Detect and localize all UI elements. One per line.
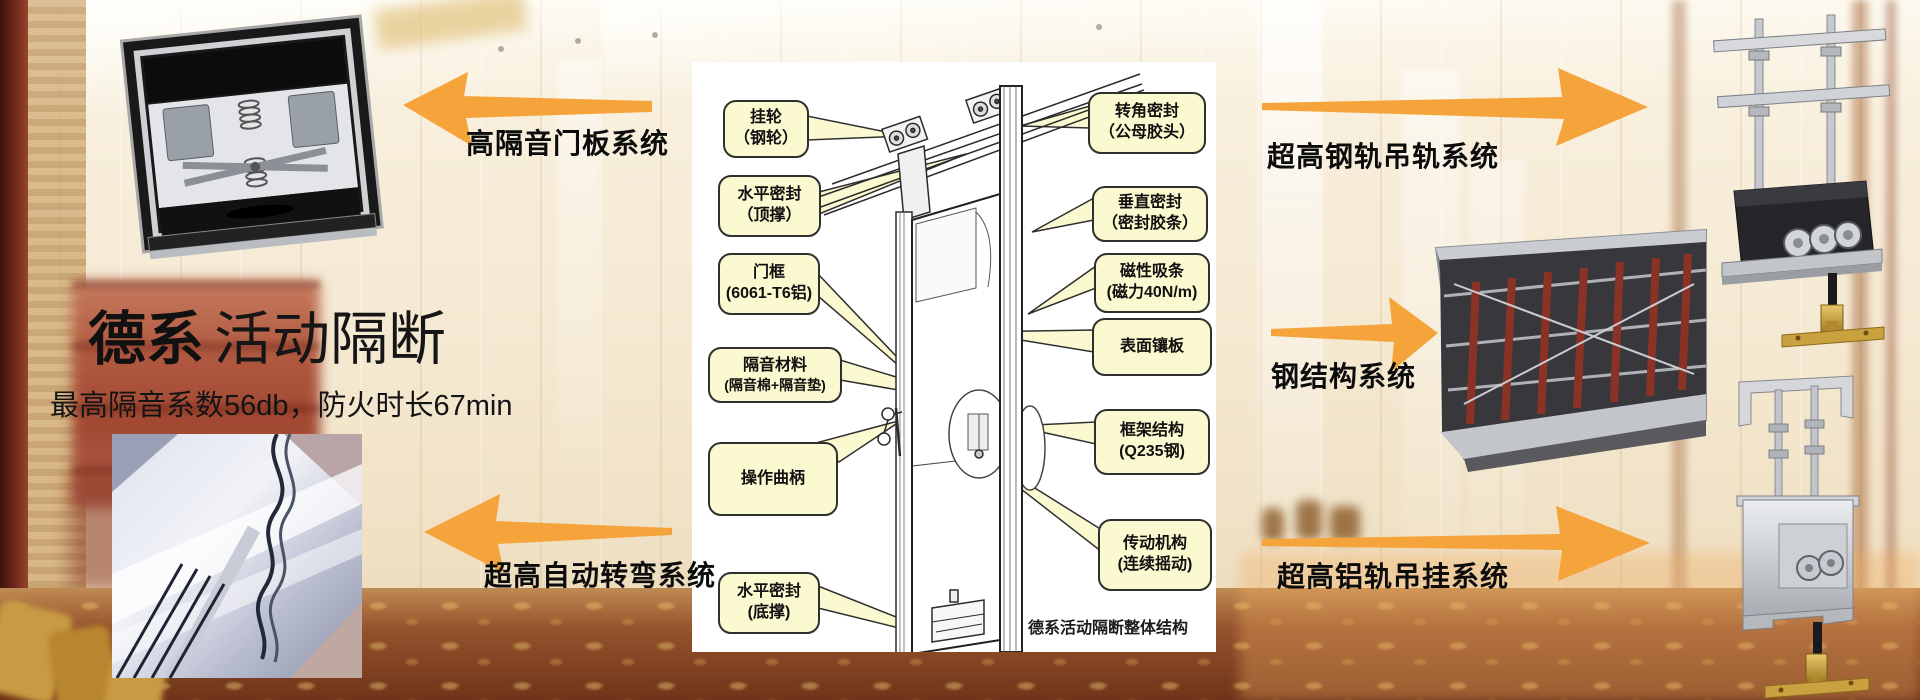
brand-title: 德系活动隔断 [88,292,446,376]
system-label-auto-turn: 超高自动转弯系统 [484,554,716,594]
window-column [1258,0,1322,545]
callout-transmission: 传动机构(连续摇动) [1098,519,1212,591]
ceiling-light-dot [1096,24,1102,30]
callout-frame-structure: 框架结构(Q235钢) [1094,409,1210,475]
callout-magnetic-strip: 磁性吸条(磁力40N/m) [1094,253,1210,313]
system-label-steel-rail: 超高钢轨吊轨系统 [1267,135,1499,175]
ceiling-light-dot [498,46,504,52]
callout-door-frame: 门框(6061-T6铝) [718,253,820,315]
callout-acoustic-material: 隔音材料(隔音棉+隔音垫) [708,347,842,403]
brand-title-regular: 活动隔断 [214,307,446,372]
door-panel-top-photo [89,0,414,279]
steel-structure-frame-photo [1424,224,1714,474]
system-label-alu-rail: 超高铝轨吊挂系统 [1277,555,1509,595]
system-label-door-panel: 高隔音门板系统 [466,122,669,162]
meeting-chair [1296,500,1322,540]
aluminum-rail-trolley-photo [1727,372,1877,700]
brand-title-bold: 德系 [88,307,204,372]
callout-surface-panel: 表面镶板 [1092,318,1212,376]
window-column [558,60,600,460]
curved-track-photo [112,434,362,678]
subtitle-specs: 最高隔音系数56db，防火时长67min [50,382,513,424]
ceiling-light-dot [652,32,658,38]
ceiling-light-dot [575,38,581,44]
callout-horizontal-seal-bottom: 水平密封(底撑) [718,572,820,634]
meeting-chair [1262,508,1284,542]
callout-corner-seal: 转角密封（公母胶头） [1088,92,1206,154]
partition-marketing-slide: 德系活动隔断 最高隔音系数56db，防火时长67min 高隔音门板系统 超高自动… [0,0,1920,700]
meeting-chair [1330,506,1360,542]
callout-horizontal-seal-top: 水平密封（顶撑） [718,175,821,237]
structure-diagram-panel: 挂轮（钢轮） 水平密封（顶撑） 门框(6061-T6铝) 隔音材料(隔音棉+隔音… [692,62,1216,652]
diagram-caption: 德系活动隔断整体结构 [1028,614,1188,638]
system-label-steel-structure: 钢结构系统 [1271,355,1416,395]
callout-vertical-seal: 垂直密封（密封胶条） [1092,186,1208,242]
callout-operating-crank: 操作曲柄 [708,442,838,516]
callout-hanger-wheel: 挂轮（钢轮） [723,100,809,158]
steel-rail-trolley-photo [1698,5,1910,353]
